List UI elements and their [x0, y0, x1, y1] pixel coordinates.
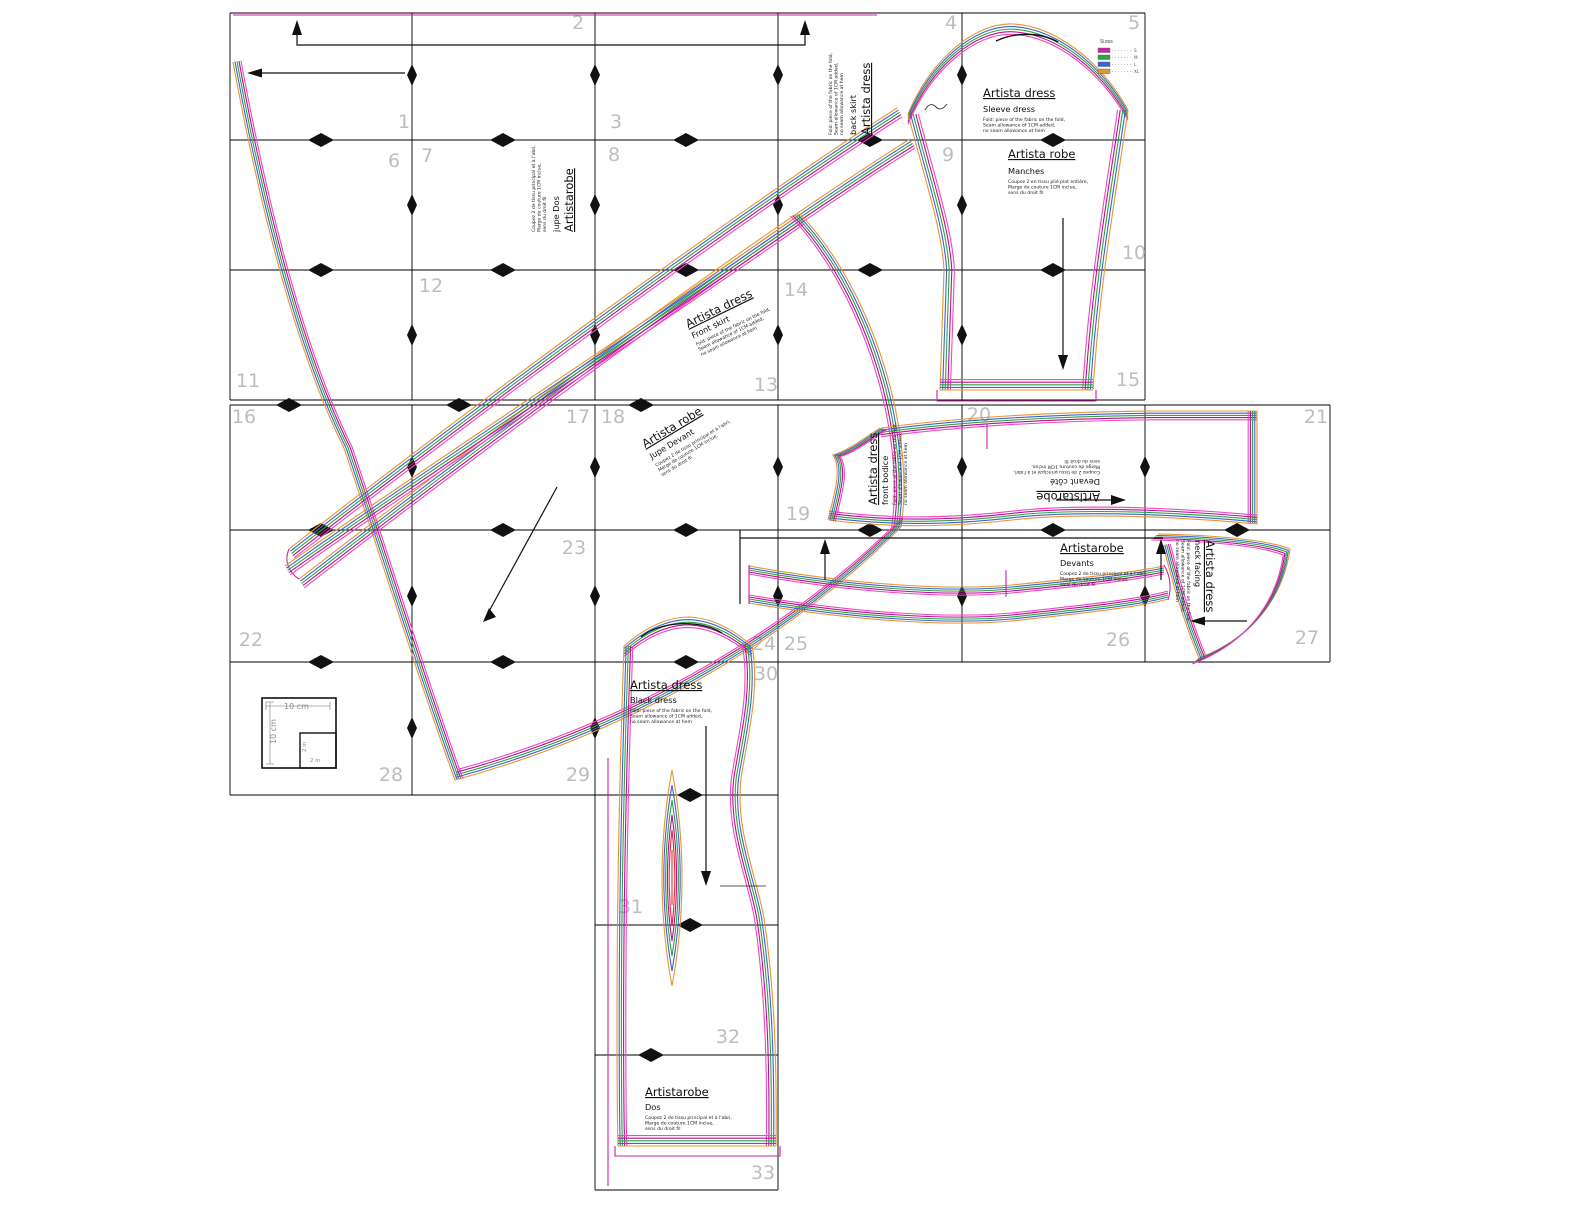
- piece-note: Coupez 2 en tissu plié plat entière,: [1008, 178, 1089, 185]
- skirt-bottom-edge: [456, 522, 902, 775]
- alignment-diamond-icon: [590, 194, 600, 216]
- skirt-top-edge: [290, 224, 804, 575]
- pattern-piece-sleeve: [908, 24, 1128, 401]
- scale-inner-width-label: 2 in: [310, 758, 321, 764]
- label-black-dress: Artista dress Black dress Fold: piece of…: [630, 678, 713, 725]
- page-number: 15: [1116, 369, 1140, 391]
- skirt-bottom-edge: [456, 524, 902, 777]
- piece-title: Artista dress: [1203, 540, 1217, 612]
- page-number: 1: [398, 111, 410, 133]
- page-number: 28: [379, 764, 403, 786]
- piece-subtitle: Manches: [1008, 166, 1044, 176]
- piece-note: Seam allowance of 1CM added,: [630, 714, 703, 720]
- piece-note: Marge de couture 1CM inclue,: [645, 1121, 714, 1127]
- legend-title: Sizes: [1100, 39, 1113, 45]
- size-legend: Sizes SMLXL: [1098, 39, 1140, 74]
- alignment-diamond-icon: [857, 263, 883, 277]
- piece-note: Coupez 2 de tissu principal et à l'abri,: [1013, 469, 1100, 476]
- page-number: 25: [784, 633, 808, 655]
- piece-note: sens du droit fil: [645, 1126, 681, 1132]
- skirt-grainline: [487, 487, 557, 615]
- alignment-diamond-icon: [590, 64, 600, 86]
- label-jupe-devant: Artista robe Jupe Devant Coupez 2 de tis…: [638, 394, 738, 479]
- back-neck-edge: [624, 625, 752, 654]
- piece-title: Artista dress: [983, 86, 1055, 100]
- arrowhead-icon: [701, 871, 711, 886]
- page-number: 21: [1304, 406, 1328, 428]
- label-facing: Artista dress neck facing Fold: piece of…: [1174, 540, 1217, 623]
- legend-swatch: [1098, 55, 1110, 60]
- alignment-diamond-icon: [1140, 456, 1150, 478]
- sash-lower-edge: [303, 146, 914, 586]
- pattern-piece-facing: [1151, 534, 1290, 664]
- piece-subtitle: jupe Dos: [551, 196, 561, 233]
- page-number: 9: [942, 144, 954, 166]
- piece-note: Marge de couture 1CM inclue,: [1031, 463, 1100, 469]
- skirt-bottom-edge: [457, 519, 903, 772]
- join-arrows-top: [247, 20, 810, 78]
- join-wave-mark: [925, 104, 947, 110]
- piece-note: no seam allowance at hem: [1174, 540, 1180, 602]
- left-arrowhead-icon: [247, 69, 262, 78]
- piece-note: Fold: piece of the fabric on the fold,: [1185, 540, 1191, 623]
- piece-title: Artista dress: [866, 433, 880, 505]
- piece-subtitle: front bodice: [880, 456, 890, 505]
- page-number: 16: [232, 406, 256, 428]
- piece-note: Coupez 2 de tissu principal et à l'abri,: [645, 1114, 732, 1121]
- alignment-diamond-icon: [490, 523, 516, 537]
- scale-square: 10 cm 10 cm 2 in 2 in: [262, 698, 336, 768]
- alignment-diamond-icon: [957, 64, 967, 86]
- skirt-bottom-edge: [455, 527, 901, 780]
- page-number: 18: [601, 406, 625, 428]
- sash-lower-edge: [304, 148, 915, 588]
- piece-title: Artista robe: [1008, 147, 1075, 161]
- page-number: 23: [562, 537, 586, 559]
- piece-note: no seam allowance at hem: [983, 128, 1045, 134]
- arrowhead-icon: [1058, 355, 1068, 370]
- alignment-diamond-icon: [677, 788, 703, 802]
- sleeve-hem-allowance: [937, 390, 1096, 401]
- piece-subtitle: Sleeve dress: [983, 104, 1035, 114]
- piece-note: sens du droit fil: [542, 197, 548, 233]
- label-sash: Artista dress Front skirt Fold: piece of…: [683, 282, 777, 358]
- skirt-top-edge: [288, 219, 802, 570]
- page-number: 5: [1128, 12, 1140, 34]
- piece-title: Artistarobe: [645, 1085, 709, 1099]
- label-dos: Artistarobe Dos Coupez 2 de tissu princi…: [645, 1085, 732, 1132]
- page-number: 22: [239, 629, 263, 651]
- alignment-diamond-icon: [407, 64, 417, 86]
- alignment-diamond-icon: [773, 456, 783, 478]
- piece-note: sens du droit fil: [1065, 458, 1101, 464]
- label-back-skirt: Fold: piece of the fabric on the fold, S…: [828, 52, 873, 135]
- piece-note: Fold: piece of the fabric on the fold,: [630, 708, 713, 714]
- piece-subtitle: Devants: [1060, 558, 1094, 568]
- piece-note: Fold: piece of the fabric on the fold,: [892, 422, 898, 505]
- back-hem-allowance: [615, 1146, 780, 1156]
- alignment-diamond-icon: [490, 655, 516, 669]
- page-number: 11: [236, 370, 260, 392]
- label-devants: Artistarobe Devants Coupez 2 de tissu pr…: [1060, 541, 1147, 588]
- piece-note: Seam allowance of 1CM added,: [898, 432, 904, 505]
- piece-subtitle: Dos: [645, 1102, 661, 1112]
- piece-note: Fold: piece of the fabric on the fold,: [983, 117, 1066, 123]
- piece-subtitle: back skirt: [848, 94, 858, 135]
- piece-note: Coupez 2 de tissu principal et à l'abri,: [1060, 570, 1147, 577]
- legend-swatch: [1098, 69, 1110, 74]
- alignment-diamond-icon: [308, 133, 334, 147]
- alignment-diamond-icon: [590, 456, 600, 478]
- skirt-left-curve: [239, 61, 461, 779]
- grainline-arrows: [483, 218, 1247, 886]
- page-number: 7: [421, 145, 433, 167]
- piece-note: Seam allowance of 1CM added,: [983, 123, 1056, 129]
- legend-items: SMLXL: [1098, 48, 1140, 74]
- page-number: 8: [608, 144, 620, 166]
- page-number: 10: [1122, 242, 1146, 264]
- alignment-diamond-icon: [773, 64, 783, 86]
- alignment-diamond-icon: [773, 324, 783, 346]
- piece-note: Coupez 2 de tissu principal et à l'abri,: [530, 145, 537, 232]
- page-number: 6: [388, 150, 400, 172]
- alignment-diamond-icon: [638, 1048, 664, 1062]
- piece-note: Marge de couture 1CM inclue,: [1060, 577, 1129, 583]
- up-arrowhead-icon: [800, 20, 810, 35]
- alignment-diamond-icon: [407, 585, 417, 607]
- back-neck-edge: [624, 622, 752, 651]
- alignment-diamond-icon: [1040, 263, 1066, 277]
- piece-title: Artistarobe: [1036, 490, 1100, 504]
- label-manches: Artista robe Manches Coupez 2 en tissu p…: [1008, 147, 1089, 196]
- pattern-piece-skirt: [233, 15, 915, 780]
- pattern-print-sheet: 1234567891011121314151617181920212223242…: [0, 0, 1576, 1218]
- up-arrowhead-icon: [1156, 539, 1166, 554]
- page-number: 33: [751, 1162, 775, 1184]
- alignment-diamond-icon: [857, 523, 883, 537]
- skirt-bottom-edge: [457, 517, 903, 770]
- piece-subtitle: Black dress: [630, 695, 677, 705]
- facing-outer-edge: [1153, 539, 1285, 663]
- page-number: 19: [786, 503, 810, 525]
- alignment-diamond-icon: [957, 324, 967, 346]
- page-number: 30: [754, 663, 778, 685]
- skirt-left-curve: [241, 61, 463, 779]
- piece-title: Artista dress: [630, 678, 702, 692]
- label-bodice: Artista dress front bodice Fold: piece o…: [866, 422, 909, 505]
- piece-note: no seam allowance at hem: [630, 719, 692, 725]
- pattern-piece-dart-lens: [662, 770, 682, 986]
- alignment-diamond-icon: [590, 585, 600, 607]
- piece-note: Seam allowance of 1CM added,: [834, 62, 840, 135]
- piece-note: Seam allowance of 1CM added,: [1179, 540, 1185, 613]
- piece-note: Marge de couture 1CM inclue,: [1008, 185, 1077, 191]
- alignment-diamond-icon: [308, 655, 334, 669]
- scale-inner-height-label: 2 in: [302, 741, 308, 752]
- up-arrowhead-icon: [820, 539, 830, 554]
- alignment-diamond-icon: [1040, 523, 1066, 537]
- page-number: 26: [1106, 629, 1130, 651]
- piece-note: sens du droit fil: [1060, 582, 1096, 588]
- pattern-sheet-svg: 1234567891011121314151617181920212223242…: [0, 0, 1576, 1218]
- alignment-diamond-icon: [490, 263, 516, 277]
- legend-swatch: [1098, 48, 1110, 53]
- piece-note: Fold: piece of the fabric on the fold,: [828, 52, 834, 135]
- page-number: 29: [566, 764, 590, 786]
- label-bodice-flipped: Artistarobe Devant côté Coupez 2 de tiss…: [1013, 458, 1100, 504]
- alignment-diamond-icon: [407, 324, 417, 346]
- scale-height-label: 10 cm: [269, 719, 278, 744]
- page-number: 12: [419, 275, 443, 297]
- page-number: 4: [945, 12, 957, 34]
- page-number: 17: [566, 406, 590, 428]
- page-number: 13: [754, 374, 778, 396]
- label-jupe-dos: Coupez 2 de tissu principal et à l'abri,…: [530, 145, 576, 233]
- alignment-diamond-icon: [673, 523, 699, 537]
- arrowhead-icon: [1111, 495, 1126, 505]
- alignment-diamond-icon: [957, 456, 967, 478]
- legend-swatch: [1098, 62, 1110, 67]
- alignment-diamond-icon: [1224, 523, 1250, 537]
- alignment-diamond-icon: [1040, 133, 1066, 147]
- page-number: 14: [784, 279, 808, 301]
- piece-title: Artista dress: [859, 63, 873, 135]
- piece-note: sens du droit fil: [1008, 190, 1044, 196]
- alignment-diamond-icon: [407, 717, 417, 739]
- up-arrowhead-icon: [292, 20, 302, 35]
- scale-width-label: 10 cm: [284, 702, 309, 711]
- alignment-diamond-icon: [957, 194, 967, 216]
- page-number: 27: [1295, 627, 1319, 649]
- legend-size-label: L: [1134, 62, 1137, 67]
- page-number: 3: [610, 111, 622, 133]
- alignment-diamond-icon: [673, 655, 699, 669]
- alignment-diamond-icon: [673, 133, 699, 147]
- arrowhead-icon: [483, 608, 496, 622]
- label-sleeve: Artista dress Sleeve dress Fold: piece o…: [983, 86, 1066, 134]
- piece-title: Artistarobe: [1060, 541, 1124, 555]
- sleeve-left-edge: [908, 114, 944, 390]
- piece-subtitle: neck facing: [1193, 540, 1203, 587]
- alignment-diamond-icon: [957, 585, 967, 607]
- legend-size-label: S: [1134, 48, 1137, 53]
- piece-note: no seam allowance at hem: [839, 73, 845, 135]
- piece-subtitle: Devant côté: [1050, 477, 1100, 487]
- join-connector-line: [297, 34, 805, 45]
- piece-note: no seam allowance at hem: [903, 443, 909, 505]
- page-number: 32: [716, 1026, 740, 1048]
- legend-size-label: M: [1134, 55, 1138, 60]
- piece-title: Artistarobe: [562, 168, 576, 232]
- skirt-top-edge: [289, 222, 803, 573]
- legend-size-label: XL: [1134, 69, 1140, 74]
- alignment-diamond-icon: [407, 194, 417, 216]
- alignment-diamond-icon: [490, 133, 516, 147]
- piece-note: Marge de couture 1CM inclue,: [537, 163, 543, 232]
- alignment-diamond-icon: [308, 263, 334, 277]
